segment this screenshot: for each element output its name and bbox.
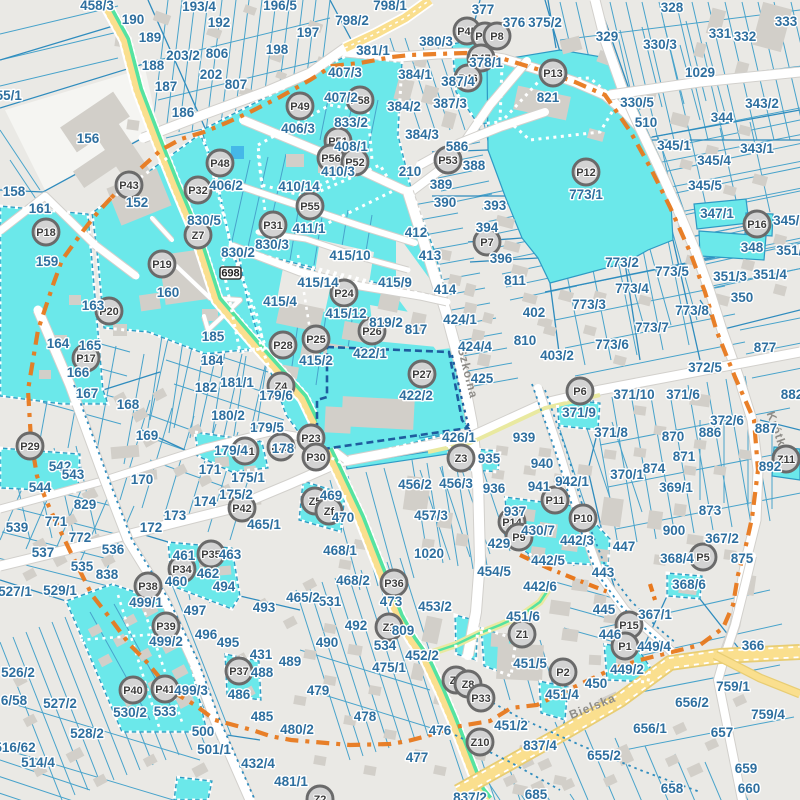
svg-text:164: 164 [47, 336, 70, 351]
svg-text:413: 413 [419, 248, 442, 263]
svg-text:461: 461 [173, 548, 196, 563]
svg-text:351/4: 351/4 [753, 267, 787, 282]
svg-text:499/3: 499/3 [174, 683, 208, 698]
svg-text:465/2: 465/2 [286, 590, 320, 605]
svg-text:514/4: 514/4 [21, 755, 55, 770]
svg-text:P31: P31 [263, 220, 283, 232]
svg-text:P2: P2 [556, 667, 569, 679]
svg-text:935: 935 [478, 451, 501, 466]
svg-text:892: 892 [759, 459, 782, 474]
svg-text:516/62: 516/62 [0, 740, 36, 755]
svg-text:330/5: 330/5 [620, 95, 654, 110]
svg-text:377: 377 [472, 2, 495, 17]
svg-text:186: 186 [172, 105, 195, 120]
svg-text:210: 210 [399, 164, 422, 179]
svg-text:877: 877 [754, 340, 777, 355]
svg-text:493: 493 [253, 600, 276, 615]
svg-text:415/12: 415/12 [325, 306, 366, 321]
svg-text:387/4: 387/4 [441, 74, 475, 89]
svg-text:375/2: 375/2 [528, 15, 562, 30]
svg-text:658: 658 [661, 781, 684, 796]
svg-text:535: 535 [71, 559, 94, 574]
svg-text:759/4: 759/4 [751, 707, 785, 722]
svg-text:P11: P11 [546, 495, 565, 507]
svg-text:390: 390 [434, 195, 457, 210]
svg-text:192: 192 [208, 15, 231, 30]
svg-text:432/4: 432/4 [241, 756, 275, 771]
svg-text:431: 431 [250, 647, 273, 662]
svg-text:380/3: 380/3 [419, 34, 453, 49]
svg-text:656/2: 656/2 [675, 695, 709, 710]
svg-text:410/14: 410/14 [278, 179, 320, 194]
svg-text:188: 188 [142, 58, 165, 73]
svg-text:460: 460 [165, 574, 188, 589]
svg-text:449/4: 449/4 [637, 639, 671, 654]
svg-text:369/1: 369/1 [659, 480, 693, 495]
svg-text:371/8: 371/8 [594, 425, 628, 440]
svg-text:P36: P36 [384, 578, 404, 590]
svg-text:499/2: 499/2 [149, 634, 183, 649]
svg-text:470: 470 [332, 510, 355, 525]
svg-text:P53: P53 [438, 155, 458, 167]
svg-text:P8: P8 [490, 31, 503, 43]
svg-text:P32: P32 [188, 185, 208, 197]
svg-text:807: 807 [225, 77, 248, 92]
svg-text:6/58: 6/58 [1, 693, 28, 708]
svg-text:422/2: 422/2 [399, 388, 433, 403]
svg-text:170: 170 [131, 472, 154, 487]
svg-text:393: 393 [484, 198, 507, 213]
svg-text:368/6: 368/6 [672, 577, 706, 592]
svg-text:544: 544 [29, 480, 52, 495]
svg-text:838: 838 [96, 567, 119, 582]
svg-text:152: 152 [126, 195, 149, 210]
svg-text:1029: 1029 [685, 65, 715, 80]
svg-text:P15: P15 [619, 620, 639, 632]
svg-text:367/2: 367/2 [705, 531, 739, 546]
svg-text:155/1: 155/1 [0, 88, 22, 103]
svg-text:189: 189 [139, 30, 162, 45]
svg-text:821: 821 [537, 90, 560, 105]
svg-text:430/7: 430/7 [521, 523, 555, 538]
svg-text:773/4: 773/4 [615, 281, 649, 296]
svg-text:527/2: 527/2 [43, 696, 77, 711]
svg-text:806: 806 [206, 46, 229, 61]
svg-text:P6: P6 [573, 386, 586, 398]
svg-text:173: 173 [164, 508, 187, 523]
svg-text:331: 331 [709, 26, 732, 41]
svg-text:468/2: 468/2 [336, 573, 370, 588]
svg-text:655/2: 655/2 [587, 748, 621, 763]
svg-text:175/1: 175/1 [231, 470, 265, 485]
svg-text:819/2: 819/2 [369, 315, 403, 330]
svg-text:526/2: 526/2 [1, 665, 35, 680]
svg-text:403/2: 403/2 [540, 348, 574, 363]
svg-text:184: 184 [201, 353, 224, 368]
svg-text:811: 811 [504, 273, 526, 288]
svg-text:942/1: 942/1 [555, 474, 589, 489]
svg-text:P37: P37 [229, 666, 249, 678]
svg-text:370/1: 370/1 [610, 467, 644, 482]
svg-text:1020: 1020 [414, 546, 444, 561]
svg-text:480/2: 480/2 [280, 722, 314, 737]
svg-text:161: 161 [29, 201, 52, 216]
svg-text:875: 875 [731, 551, 754, 566]
svg-text:185: 185 [202, 329, 225, 344]
svg-text:Z2: Z2 [314, 794, 327, 800]
svg-text:376: 376 [503, 15, 526, 30]
svg-text:870: 870 [662, 429, 685, 444]
svg-text:486: 486 [228, 687, 251, 702]
svg-text:426/1: 426/1 [442, 430, 476, 445]
svg-text:773/8: 773/8 [675, 303, 709, 318]
svg-text:833/2: 833/2 [334, 115, 368, 130]
svg-text:384/3: 384/3 [405, 127, 439, 142]
svg-text:167: 167 [76, 386, 99, 401]
svg-text:351/1: 351/1 [776, 243, 800, 258]
svg-text:415/2: 415/2 [299, 353, 333, 368]
svg-text:810: 810 [514, 333, 537, 348]
svg-text:425: 425 [471, 371, 494, 386]
svg-text:179/5: 179/5 [250, 420, 284, 435]
svg-text:443: 443 [592, 565, 615, 580]
svg-text:P5: P5 [696, 552, 709, 564]
svg-text:445: 445 [593, 602, 616, 617]
svg-text:468/1: 468/1 [323, 543, 357, 558]
svg-text:371/9: 371/9 [562, 405, 596, 420]
svg-text:533: 533 [154, 704, 177, 719]
svg-text:492: 492 [345, 618, 368, 633]
svg-text:829: 829 [74, 497, 97, 512]
svg-text:469: 469 [320, 488, 343, 503]
svg-text:202: 202 [200, 67, 223, 82]
svg-text:P30: P30 [306, 452, 326, 464]
svg-text:531: 531 [319, 594, 342, 609]
svg-text:543: 543 [62, 467, 85, 482]
svg-text:366: 366 [742, 638, 765, 653]
svg-text:156: 156 [77, 131, 100, 146]
svg-text:660: 660 [738, 781, 761, 796]
svg-text:384/1: 384/1 [398, 67, 432, 82]
svg-text:P40: P40 [123, 685, 143, 697]
svg-text:P10: P10 [573, 513, 593, 525]
svg-text:496: 496 [195, 627, 218, 642]
svg-text:181/1: 181/1 [220, 375, 254, 390]
svg-text:941: 941 [528, 479, 551, 494]
svg-text:451/2: 451/2 [494, 718, 528, 733]
svg-text:P13: P13 [543, 68, 563, 80]
svg-text:809: 809 [392, 623, 415, 638]
svg-text:475/1: 475/1 [372, 660, 406, 675]
svg-text:465/1: 465/1 [247, 517, 281, 532]
svg-text:180/2: 180/2 [211, 408, 245, 423]
svg-text:P1: P1 [618, 641, 631, 653]
svg-text:329: 329 [596, 29, 619, 44]
svg-text:698: 698 [221, 268, 239, 280]
svg-text:830/5: 830/5 [187, 213, 221, 228]
svg-text:887: 887 [755, 421, 778, 436]
svg-text:494: 494 [213, 579, 236, 594]
svg-text:344: 344 [711, 110, 734, 125]
svg-text:882: 882 [781, 387, 800, 402]
svg-text:387/3: 387/3 [433, 96, 467, 111]
svg-text:345/4: 345/4 [697, 153, 731, 168]
svg-text:P28: P28 [273, 340, 293, 352]
svg-text:873: 873 [699, 503, 722, 518]
svg-text:449/2: 449/2 [610, 662, 644, 677]
svg-text:P41: P41 [155, 684, 175, 696]
svg-text:772: 772 [69, 530, 92, 545]
svg-text:P43: P43 [119, 180, 139, 192]
svg-text:442/3: 442/3 [560, 533, 594, 548]
svg-text:452/2: 452/2 [405, 648, 439, 663]
svg-text:179/4: 179/4 [214, 443, 248, 458]
svg-text:536: 536 [102, 542, 125, 557]
svg-text:Z7: Z7 [192, 230, 205, 242]
svg-text:158: 158 [3, 184, 26, 199]
svg-text:367/1: 367/1 [638, 607, 672, 622]
svg-text:406/3: 406/3 [281, 121, 315, 136]
svg-text:160: 160 [157, 285, 180, 300]
svg-text:415/14: 415/14 [297, 275, 339, 290]
svg-text:332: 332 [734, 29, 757, 44]
svg-text:454/5: 454/5 [477, 564, 511, 579]
svg-text:490: 490 [316, 635, 339, 650]
svg-text:350: 350 [731, 290, 754, 305]
svg-text:481/1: 481/1 [274, 774, 308, 789]
svg-text:936: 936 [483, 481, 506, 496]
svg-text:372/6: 372/6 [710, 413, 744, 428]
svg-text:656/1: 656/1 [633, 721, 667, 736]
svg-text:798/2: 798/2 [335, 13, 369, 28]
svg-text:378/1: 378/1 [469, 55, 503, 70]
svg-text:P55: P55 [300, 201, 320, 213]
svg-text:415/10: 415/10 [329, 248, 370, 263]
svg-text:203/2: 203/2 [166, 48, 200, 63]
svg-text:368/4: 368/4 [660, 551, 694, 566]
svg-text:410/3: 410/3 [321, 164, 355, 179]
svg-text:463: 463 [219, 547, 242, 562]
svg-text:871: 871 [673, 449, 696, 464]
svg-text:529/1: 529/1 [43, 583, 77, 598]
svg-text:530/2: 530/2 [113, 705, 147, 720]
svg-text:345/5: 345/5 [688, 178, 722, 193]
svg-text:396: 396 [490, 251, 513, 266]
svg-text:442/5: 442/5 [531, 553, 565, 568]
svg-text:447: 447 [613, 539, 636, 554]
svg-text:163: 163 [82, 298, 105, 313]
svg-text:657: 657 [711, 725, 734, 740]
svg-text:488: 488 [251, 665, 274, 680]
svg-text:759/1: 759/1 [716, 679, 750, 694]
svg-text:347/1: 347/1 [700, 206, 734, 221]
svg-text:477: 477 [406, 750, 429, 765]
svg-text:345/7: 345/7 [773, 213, 800, 228]
svg-text:424/1: 424/1 [443, 312, 477, 327]
svg-text:659: 659 [735, 761, 758, 776]
svg-text:773/6: 773/6 [595, 337, 629, 352]
svg-text:457/3: 457/3 [414, 508, 448, 523]
svg-text:175/2: 175/2 [219, 487, 253, 502]
svg-text:534: 534 [374, 638, 397, 653]
svg-text:Z10: Z10 [471, 737, 490, 749]
svg-text:P17: P17 [76, 353, 96, 365]
svg-text:190: 190 [122, 12, 145, 27]
svg-text:798/1: 798/1 [373, 0, 407, 13]
svg-text:P7: P7 [480, 237, 493, 249]
svg-text:837/4: 837/4 [523, 738, 557, 753]
svg-text:495: 495 [217, 635, 240, 650]
svg-text:Z3: Z3 [455, 453, 468, 465]
svg-text:510: 510 [635, 115, 658, 130]
svg-text:456/2: 456/2 [398, 477, 432, 492]
svg-text:196/5: 196/5 [263, 0, 297, 13]
svg-text:P19: P19 [152, 259, 172, 271]
svg-text:817: 817 [405, 322, 428, 337]
svg-text:456/3: 456/3 [439, 476, 473, 491]
svg-text:328: 328 [661, 0, 684, 15]
svg-text:830/2: 830/2 [221, 245, 255, 260]
svg-text:489: 489 [279, 654, 302, 669]
svg-text:773/2: 773/2 [605, 255, 639, 270]
svg-text:497: 497 [184, 603, 207, 618]
svg-text:424/4: 424/4 [458, 339, 492, 354]
svg-text:388: 388 [463, 158, 486, 173]
svg-text:411/1: 411/1 [292, 221, 326, 236]
svg-text:939: 939 [513, 430, 536, 445]
svg-text:422/1: 422/1 [353, 346, 387, 361]
svg-text:485: 485 [251, 709, 274, 724]
svg-text:P49: P49 [290, 101, 310, 113]
svg-text:171: 171 [199, 462, 222, 477]
svg-text:446: 446 [599, 627, 622, 642]
svg-text:168: 168 [117, 397, 140, 412]
svg-text:450: 450 [585, 676, 608, 691]
svg-text:343/2: 343/2 [745, 96, 779, 111]
svg-text:169: 169 [136, 428, 159, 443]
svg-text:182: 182 [195, 380, 218, 395]
svg-text:P12: P12 [576, 167, 596, 179]
svg-text:501/1: 501/1 [197, 742, 231, 757]
svg-text:451/6: 451/6 [506, 609, 540, 624]
svg-text:389: 389 [430, 177, 453, 192]
svg-text:179/6: 179/6 [259, 388, 293, 403]
svg-text:429: 429 [488, 536, 511, 551]
svg-text:371/10: 371/10 [613, 387, 654, 402]
svg-text:406/2: 406/2 [209, 178, 243, 193]
svg-text:P29: P29 [20, 441, 40, 453]
svg-text:333: 333 [775, 14, 798, 29]
svg-text:P42: P42 [232, 503, 252, 515]
svg-text:453/2: 453/2 [418, 599, 452, 614]
svg-text:830/3: 830/3 [255, 237, 289, 252]
svg-text:874: 874 [643, 461, 666, 476]
svg-text:415/9: 415/9 [378, 275, 412, 290]
svg-text:527/1: 527/1 [0, 584, 32, 599]
svg-text:414: 414 [434, 282, 457, 297]
svg-text:442/6: 442/6 [523, 579, 557, 594]
svg-text:165: 165 [79, 338, 102, 353]
svg-text:394: 394 [476, 220, 499, 235]
svg-text:537: 537 [32, 545, 55, 560]
svg-text:473: 473 [380, 594, 403, 609]
svg-text:P48: P48 [210, 158, 230, 170]
svg-text:773/3: 773/3 [572, 297, 606, 312]
svg-text:771: 771 [45, 514, 68, 529]
svg-text:P18: P18 [36, 227, 56, 239]
svg-text:900: 900 [663, 523, 686, 538]
svg-text:451/4: 451/4 [545, 687, 579, 702]
svg-text:P16: P16 [747, 219, 767, 231]
svg-text:193/4: 193/4 [182, 0, 216, 14]
svg-text:P39: P39 [156, 621, 176, 633]
svg-text:178: 178 [272, 441, 295, 456]
svg-text:330/3: 330/3 [643, 37, 677, 52]
svg-text:539: 539 [6, 520, 29, 535]
svg-text:479: 479 [307, 683, 330, 698]
svg-text:159: 159 [36, 254, 59, 269]
svg-text:174: 174 [194, 494, 217, 509]
svg-text:415/4: 415/4 [263, 294, 297, 309]
svg-text:407/3: 407/3 [328, 65, 362, 80]
svg-text:371/6: 371/6 [666, 387, 700, 402]
svg-text:837/2: 837/2 [453, 790, 487, 800]
svg-text:586: 586 [446, 139, 469, 154]
svg-text:937: 937 [504, 504, 527, 519]
svg-text:773/1: 773/1 [569, 187, 603, 202]
svg-text:166: 166 [67, 365, 90, 380]
svg-text:408/1: 408/1 [334, 139, 368, 154]
svg-text:198: 198 [266, 42, 289, 57]
svg-text:Z1: Z1 [516, 629, 529, 641]
svg-text:476: 476 [429, 723, 452, 738]
svg-text:478: 478 [354, 709, 377, 724]
svg-text:407/2: 407/2 [324, 90, 358, 105]
svg-text:343/1: 343/1 [740, 141, 774, 156]
svg-text:500: 500 [192, 724, 215, 739]
svg-text:940: 940 [531, 456, 554, 471]
svg-text:351/3: 351/3 [713, 269, 747, 284]
svg-text:345/1: 345/1 [657, 138, 691, 153]
svg-text:P25: P25 [306, 334, 326, 346]
svg-text:458/3: 458/3 [80, 0, 114, 13]
svg-text:773/7: 773/7 [635, 320, 669, 335]
svg-text:172: 172 [140, 520, 163, 535]
svg-text:451/5: 451/5 [513, 656, 547, 671]
svg-text:187: 187 [155, 79, 178, 94]
svg-text:402: 402 [523, 305, 546, 320]
svg-text:P33: P33 [471, 693, 491, 705]
svg-text:P27: P27 [412, 369, 432, 381]
svg-text:685: 685 [525, 787, 548, 800]
svg-text:528/2: 528/2 [70, 726, 104, 741]
svg-text:348: 348 [741, 240, 764, 255]
svg-text:499/1: 499/1 [129, 595, 163, 610]
svg-text:381/1: 381/1 [356, 43, 390, 58]
svg-text:P38: P38 [138, 581, 158, 593]
svg-text:773/5: 773/5 [655, 264, 689, 279]
svg-text:372/5: 372/5 [688, 360, 722, 375]
svg-text:384/2: 384/2 [387, 99, 421, 114]
svg-text:412: 412 [405, 225, 428, 240]
svg-text:197: 197 [297, 25, 320, 40]
